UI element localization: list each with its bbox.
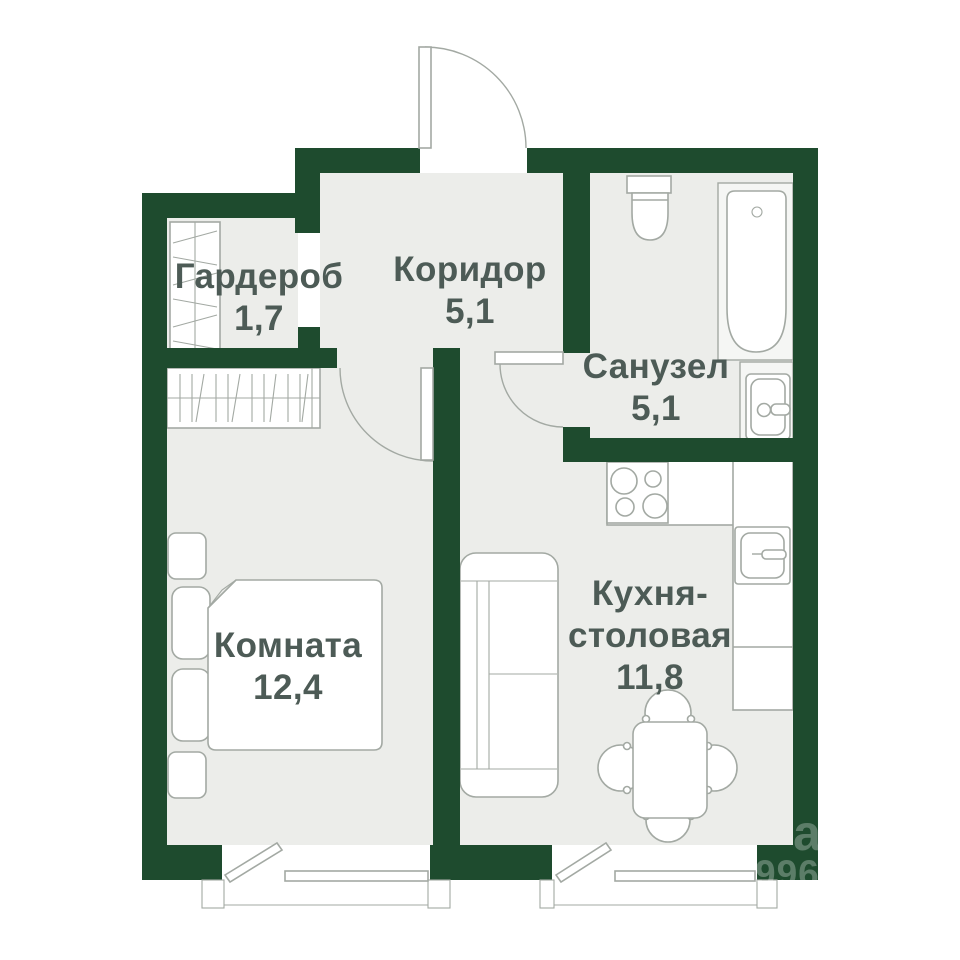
bedroom-closet xyxy=(167,368,320,428)
kitchen-sink xyxy=(735,527,790,584)
washbasin xyxy=(740,362,793,448)
room-label-corridor: Коридор 5,1 xyxy=(393,249,546,333)
nightstand xyxy=(168,533,206,579)
room-area: 5,1 xyxy=(583,388,730,430)
table-top xyxy=(633,722,707,818)
kitchen-window xyxy=(540,843,777,908)
bathtub xyxy=(718,183,793,360)
room-name: столовая xyxy=(568,615,732,657)
stove xyxy=(607,462,668,523)
floorplan-drawing xyxy=(0,0,960,960)
room-label-bathroom: Санузел 5,1 xyxy=(583,346,730,430)
sofa xyxy=(460,553,558,797)
bedroom-window xyxy=(202,843,450,908)
pillow xyxy=(172,669,210,741)
room-name: Санузел xyxy=(583,346,730,388)
room-name: Гардероб xyxy=(175,256,344,298)
room-area: 1,7 xyxy=(175,298,344,340)
pillow xyxy=(172,587,210,659)
room-area: 11,8 xyxy=(568,657,732,699)
entrance-door xyxy=(419,47,526,148)
room-label-bedroom: Комната 12,4 xyxy=(214,625,362,709)
room-label-kitchen: Кухня- столовая 11,8 xyxy=(568,573,732,699)
room-area: 12,4 xyxy=(214,667,362,709)
floorplan-page: Гардероб 1,7 Коридор 5,1 Санузел 5,1 Ком… xyxy=(0,0,960,960)
room-label-wardrobe: Гардероб 1,7 xyxy=(175,256,344,340)
room-name: Коридор xyxy=(393,249,546,291)
room-area: 5,1 xyxy=(393,291,546,333)
room-name: Комната xyxy=(214,625,362,667)
nightstand xyxy=(168,752,206,798)
room-name: Кухня- xyxy=(568,573,732,615)
